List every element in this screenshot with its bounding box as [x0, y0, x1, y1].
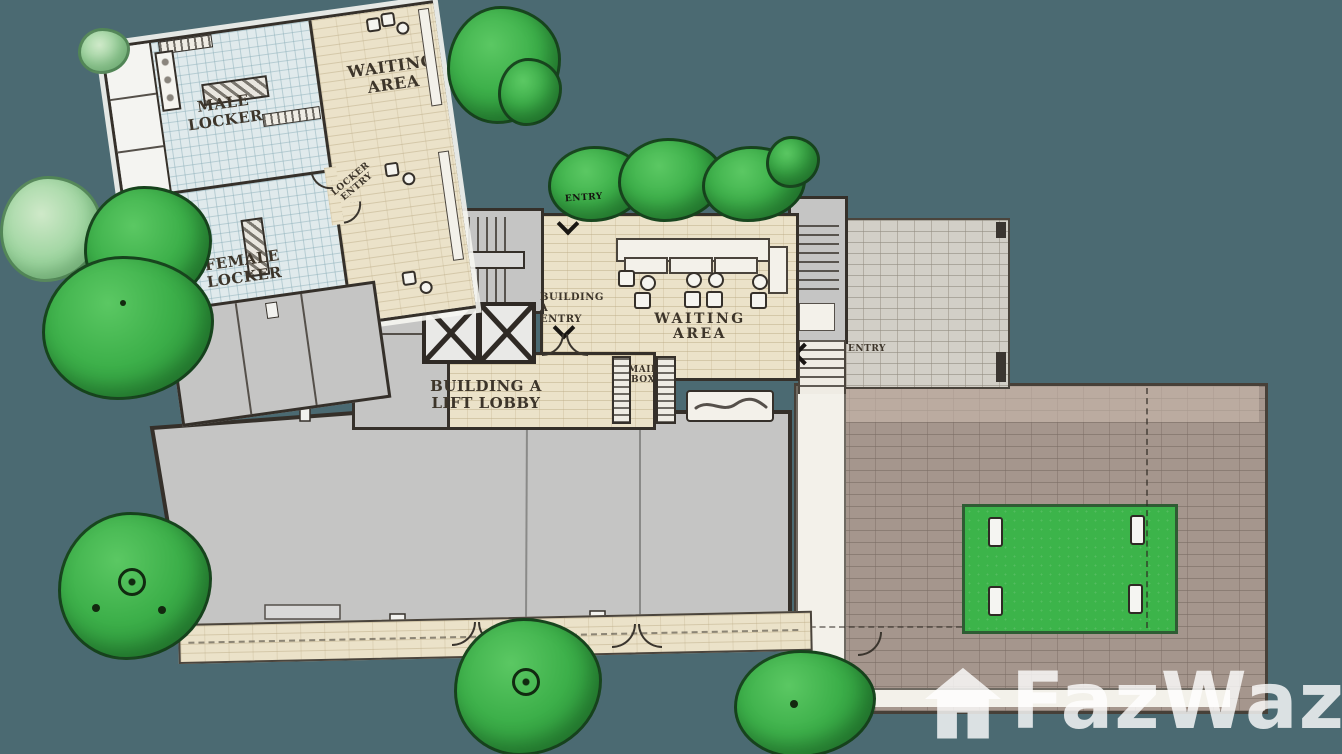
lift-lobby-line2: LIFT LOBBY: [431, 394, 540, 412]
chair: [708, 272, 724, 288]
watermark: FazWaz: [925, 650, 1342, 754]
setback-dashed-line: [800, 626, 962, 628]
chair: [366, 17, 382, 33]
chair: [384, 162, 400, 178]
tree: [734, 650, 876, 754]
lift-car: [478, 302, 536, 364]
tree-dot: [92, 604, 100, 612]
chair: [752, 274, 768, 290]
tree-dot: [158, 606, 166, 614]
wheel-stop: [988, 517, 1003, 547]
main-waiting-label: WAITING AREA: [636, 312, 764, 343]
male-locker-label: MALE LOCKER: [167, 88, 281, 136]
court-post: [996, 222, 1006, 238]
tree-trunk: [118, 568, 146, 596]
door-arc: [310, 169, 333, 192]
side-entry-label: ENTRY: [842, 345, 892, 355]
watermark-brand: FazWaz: [1011, 657, 1342, 747]
plaza-light-band: [797, 386, 1259, 422]
lift-lobby-line1: BUILDING A: [430, 377, 542, 395]
chair: [684, 291, 701, 308]
floor-plan: ENTRY MAIL BOX: [0, 0, 1342, 754]
wheel-stop: [1130, 515, 1145, 545]
mail-box-label: MAIL BOX: [622, 366, 664, 386]
chair: [380, 12, 396, 28]
wheel-stop: [988, 586, 1003, 616]
tree-trunk: [120, 300, 126, 306]
lift-lobby-label: BUILDING A LIFT LOBBY: [430, 378, 542, 411]
chair: [401, 270, 417, 286]
tree: [498, 58, 562, 126]
cobblestone-court: [844, 218, 1010, 389]
chair: [634, 292, 651, 309]
house-icon: [925, 653, 1001, 751]
chair: [750, 292, 767, 309]
chair: [640, 275, 656, 291]
stair-treads: [795, 225, 839, 295]
reception-desk: [714, 257, 758, 274]
building-a-entry-line1: BUILDING A: [540, 292, 604, 314]
court-post: [996, 352, 1006, 382]
mail-box-line1: MAIL: [628, 365, 657, 375]
chair: [706, 291, 723, 308]
tree-trunk: [790, 700, 798, 708]
chair: [618, 270, 635, 287]
tree: [766, 136, 820, 188]
wheel-stop: [1128, 584, 1143, 614]
chair: [686, 272, 702, 288]
stair-landing: [799, 303, 835, 331]
waiting-bench: [768, 246, 788, 294]
mail-box-line2: BOX: [631, 375, 655, 385]
building-a-entry-label: BUILDING A ENTRY: [540, 292, 616, 325]
tree-trunk: [512, 668, 540, 696]
lobby-bench: [686, 390, 774, 422]
setback-dashed-line: [1146, 388, 1148, 628]
